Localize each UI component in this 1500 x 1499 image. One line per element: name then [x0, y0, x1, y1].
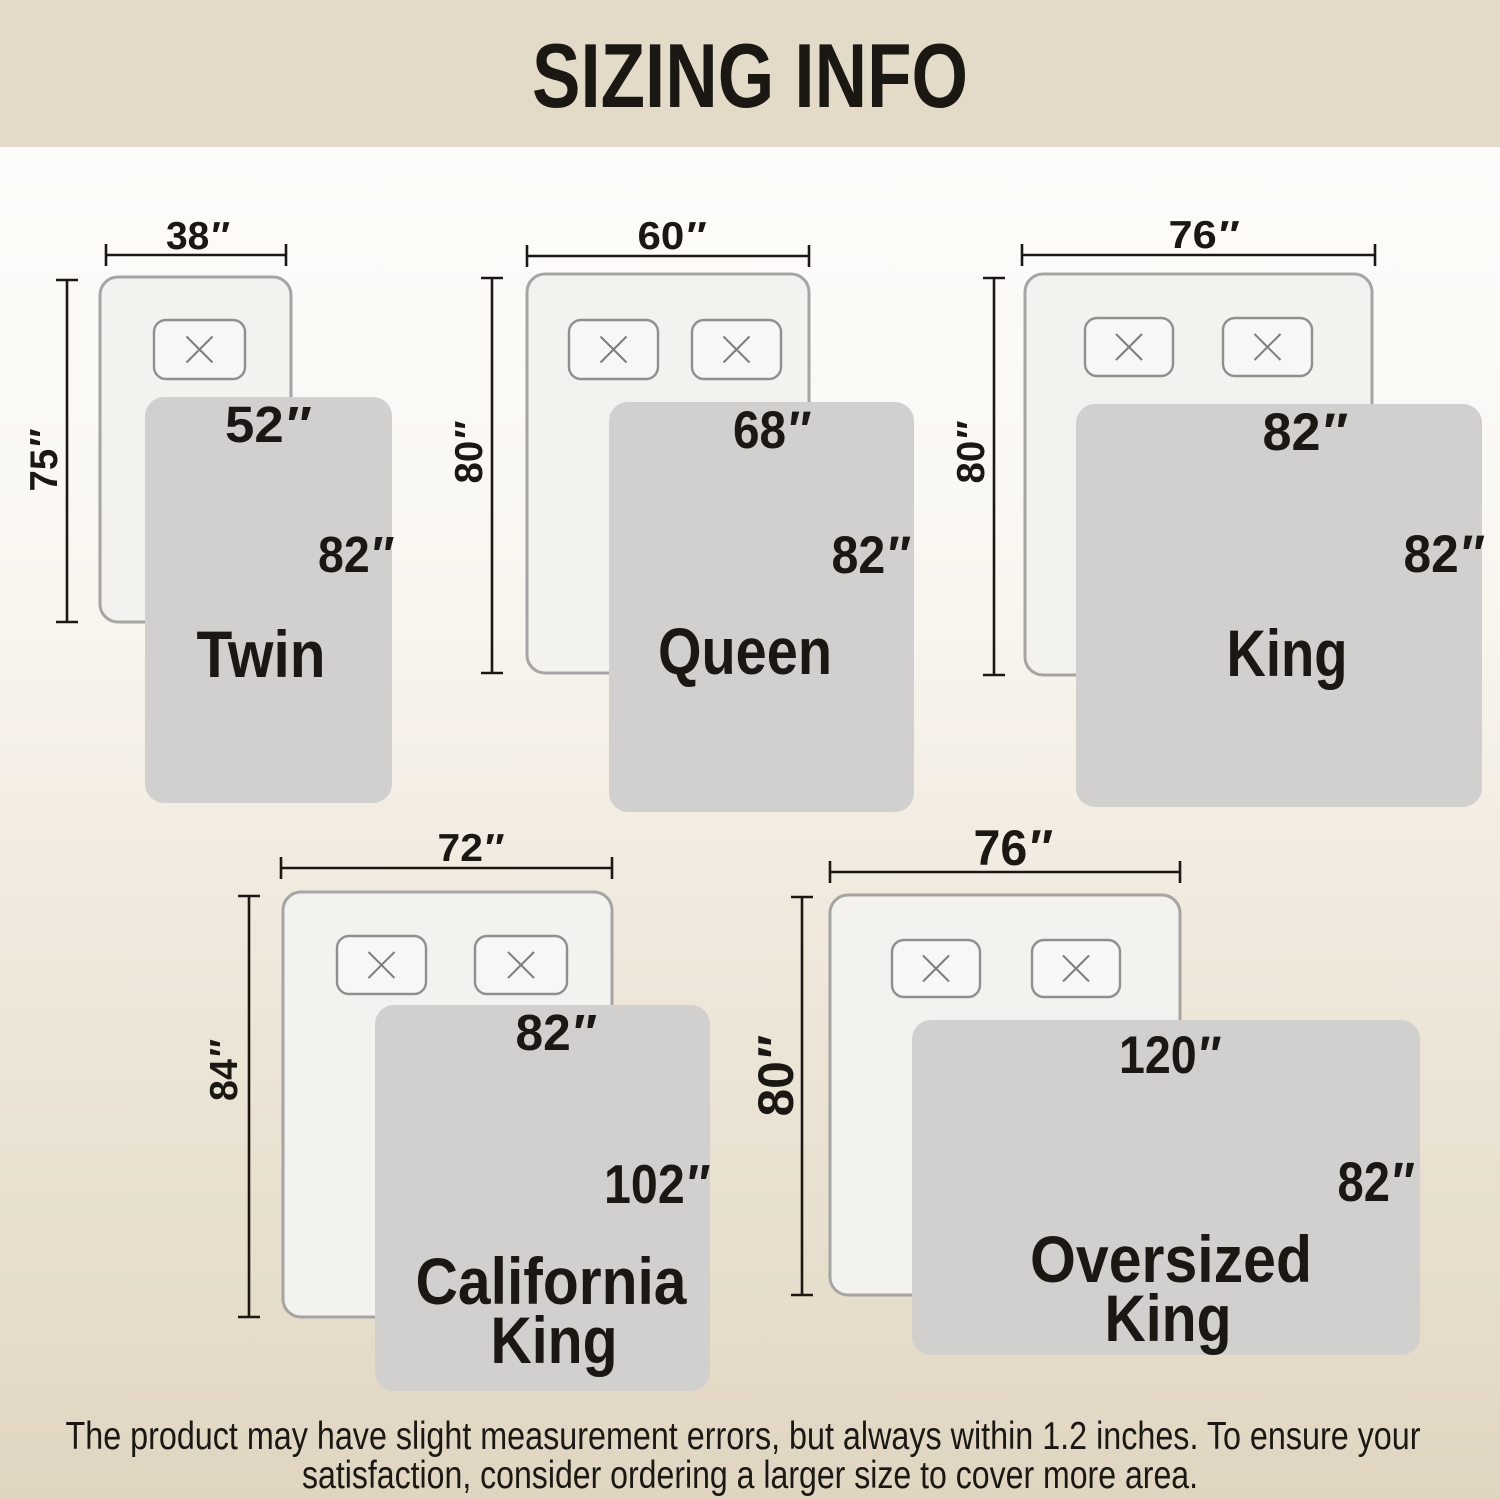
svg-text:76″: 76″	[1169, 214, 1241, 257]
svg-text:52″: 52″	[225, 396, 312, 453]
svg-text:King: King	[491, 1303, 618, 1377]
svg-text:satisfaction, consider orderin: satisfaction, consider ordering a larger…	[302, 1454, 1198, 1497]
svg-text:72″: 72″	[438, 827, 505, 870]
svg-text:The product may have slight me: The product may have slight measurement …	[66, 1415, 1421, 1458]
svg-text:Queen: Queen	[658, 614, 832, 688]
svg-text:82″: 82″	[832, 526, 911, 585]
svg-text:82″: 82″	[1404, 525, 1485, 584]
svg-text:82″: 82″	[1338, 1150, 1415, 1213]
svg-text:Twin: Twin	[197, 617, 326, 691]
svg-text:84″: 84″	[203, 1039, 246, 1101]
svg-text:80″: 80″	[448, 420, 491, 483]
svg-text:102″: 102″	[604, 1153, 710, 1215]
svg-text:82″: 82″	[1263, 403, 1349, 462]
svg-text:68″: 68″	[733, 401, 811, 460]
svg-text:120″: 120″	[1119, 1026, 1221, 1085]
svg-text:80″: 80″	[748, 1035, 804, 1116]
svg-text:38″: 38″	[166, 215, 230, 258]
svg-text:76″: 76″	[974, 820, 1053, 876]
svg-text:75″: 75″	[23, 428, 66, 491]
svg-text:King: King	[1105, 1281, 1232, 1355]
svg-text:60″: 60″	[638, 215, 707, 258]
svg-text:82″: 82″	[516, 1004, 597, 1061]
svg-text:80″: 80″	[950, 420, 993, 483]
svg-text:King: King	[1227, 616, 1348, 690]
svg-text:82″: 82″	[318, 526, 394, 583]
svg-text:SIZING INFO: SIZING INFO	[532, 26, 968, 127]
